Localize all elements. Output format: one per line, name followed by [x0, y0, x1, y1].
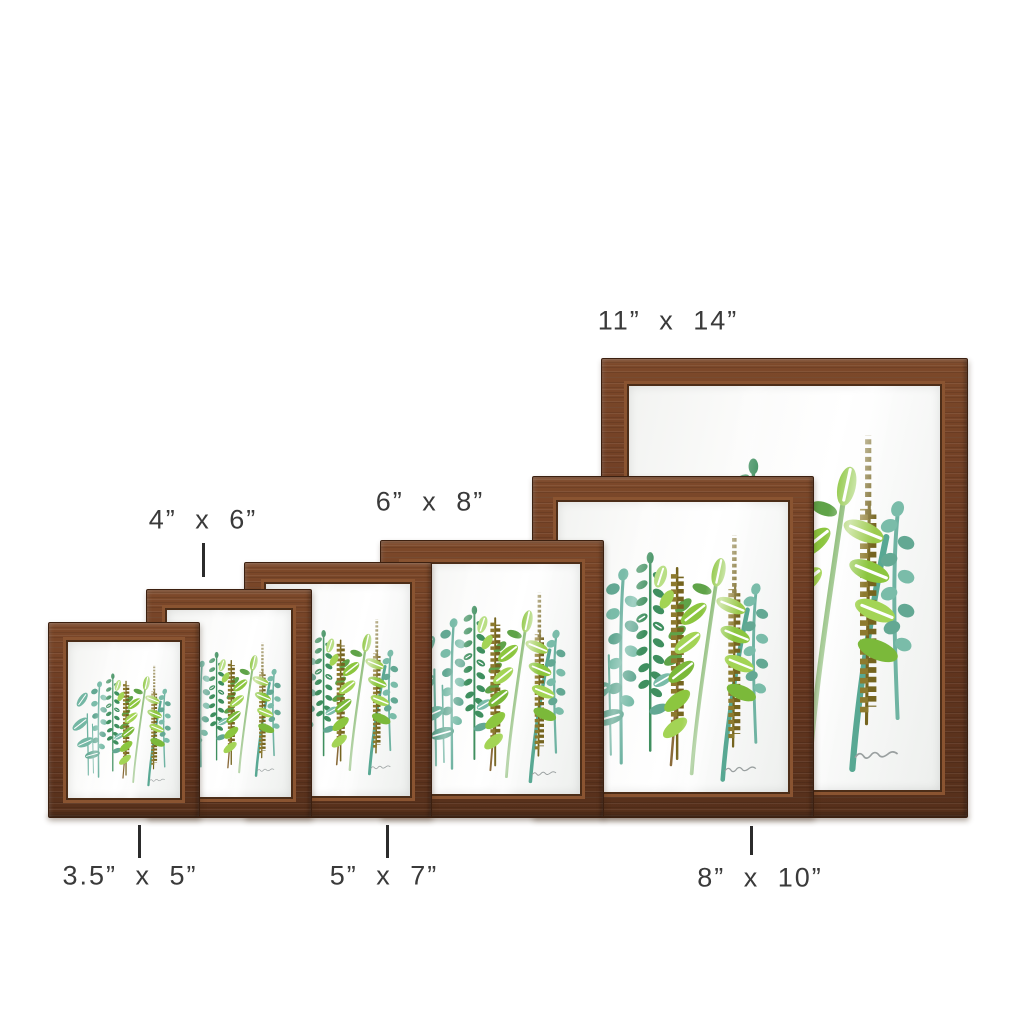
leader-line-3-5x5: [138, 825, 141, 858]
leader-line-8x10: [750, 826, 753, 855]
leader-line-5x7: [386, 825, 389, 858]
size-label-11x14: 11” x 14”: [598, 306, 739, 337]
leader-line-4x6: [202, 543, 205, 577]
size-label-4x6: 4” x 6”: [149, 505, 258, 536]
size-label-6x8: 6” x 8”: [376, 487, 485, 518]
size-label-3-5x5: 3.5” x 5”: [62, 861, 197, 892]
size-label-8x10: 8” x 10”: [697, 863, 823, 894]
frame-size-comparison-image: 11” x 14” 6” x 8” 4” x 6” 3.5” x 5” 5” x…: [0, 0, 1024, 1024]
size-label-5x7: 5” x 7”: [330, 861, 439, 892]
frame-3-5x5: [48, 622, 200, 818]
botanical-print: [68, 642, 180, 798]
botanical-print-artwork: [68, 642, 180, 798]
